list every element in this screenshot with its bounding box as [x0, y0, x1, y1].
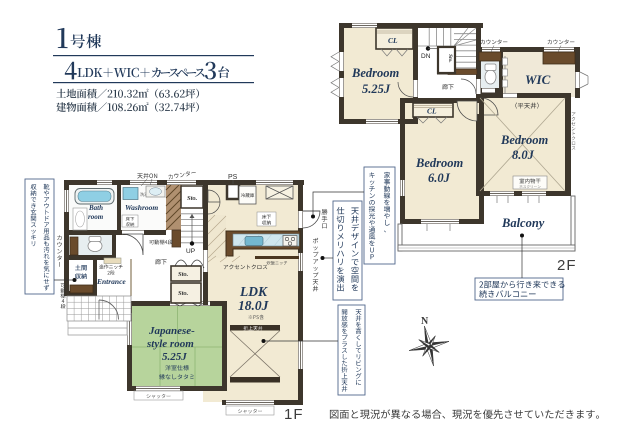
svg-text:DN: DN	[421, 53, 431, 60]
svg-text:18.0J: 18.0J	[238, 298, 270, 313]
svg-text:6.0J: 6.0J	[428, 171, 451, 185]
svg-text:5.25J: 5.25J	[362, 82, 391, 96]
svg-text:Bath: Bath	[88, 204, 103, 212]
svg-text:Balcony: Balcony	[501, 216, 545, 230]
svg-text:room: room	[88, 213, 104, 221]
svg-text:UP: UP	[186, 248, 195, 255]
svg-text:Entrance: Entrance	[96, 277, 126, 286]
svg-text:Bedroom: Bedroom	[351, 66, 400, 80]
svg-text:Bedroom: Bedroom	[415, 156, 464, 170]
svg-text:8.0J: 8.0J	[512, 148, 535, 162]
svg-text:Sto.: Sto.	[447, 54, 453, 63]
svg-text:style room: style room	[146, 338, 194, 350]
svg-text:Sto.: Sto.	[178, 290, 189, 297]
svg-text:N: N	[421, 316, 429, 327]
svg-text:WIC: WIC	[525, 72, 551, 87]
svg-text:1F: 1F	[284, 406, 304, 423]
svg-text:Sto.: Sto.	[178, 271, 189, 278]
svg-text:PS: PS	[228, 174, 238, 181]
svg-text:5.25J: 5.25J	[162, 351, 187, 363]
svg-text:CL: CL	[427, 107, 437, 116]
svg-text:Japanese-: Japanese-	[148, 325, 195, 337]
svg-text:Bedroom: Bedroom	[500, 133, 549, 147]
svg-text:LDK: LDK	[239, 284, 268, 299]
svg-text:2F: 2F	[557, 257, 577, 274]
svg-text:CL: CL	[388, 36, 398, 45]
svg-text:Sto.: Sto.	[187, 195, 198, 202]
svg-text:Washroom: Washroom	[125, 203, 158, 212]
